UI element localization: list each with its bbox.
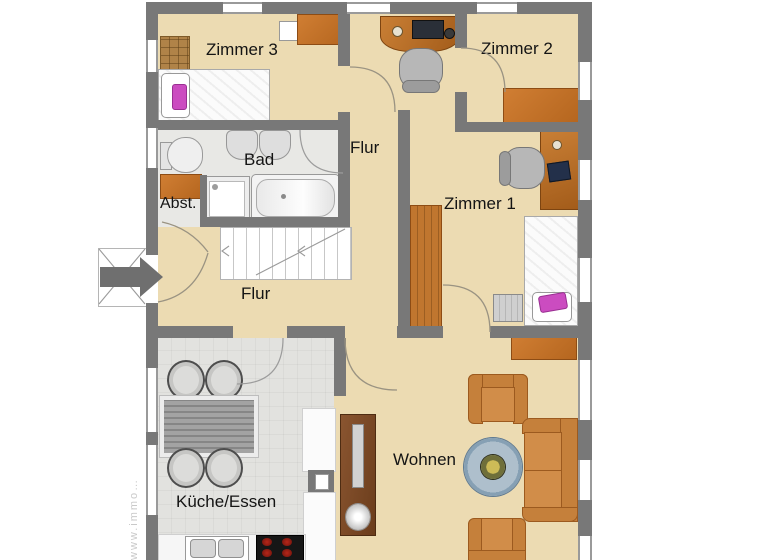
nightstand-zimmer1 <box>493 294 523 322</box>
sink-bowl-left <box>190 539 216 558</box>
dining-table <box>160 396 258 457</box>
sideboard-zimmer2 <box>503 88 579 124</box>
wall-bottom-seg2 <box>287 326 345 338</box>
wall-bad-south <box>200 217 350 227</box>
wall-kitchen-wohnen-stub <box>334 338 346 396</box>
office-chair-flur-back <box>402 80 440 93</box>
kitchen-counter-lower-right <box>303 492 336 560</box>
armchair-bottom-back <box>468 550 526 560</box>
room-label-flur-lower: Flur <box>241 284 270 304</box>
shower <box>204 176 250 222</box>
floor-plan: Zimmer 3 Zimmer 2 Zimmer 1 Bad Flur Abst… <box>0 0 768 560</box>
window-right-5 <box>578 460 592 500</box>
wall-bottom-seg3 <box>397 326 443 338</box>
window-left-3 <box>146 368 158 432</box>
office-chair-zimmer1-back <box>499 151 511 186</box>
room-label-wohnen: Wohnen <box>393 450 456 470</box>
dining-chair-3 <box>167 448 205 488</box>
entrance-door-gap <box>146 255 158 303</box>
window-left-1 <box>146 40 158 72</box>
dining-chair-1 <box>167 360 205 400</box>
window-right-3 <box>578 258 592 302</box>
armchair-bottom-seat <box>481 518 513 554</box>
coffee-table-bowl <box>481 455 505 479</box>
armchair-top-seat <box>481 387 515 422</box>
plant <box>346 504 370 530</box>
kitchen-counter-right <box>302 408 336 472</box>
stove-burner-4 <box>282 549 292 557</box>
stove-burner-3 <box>262 549 272 557</box>
room-label-zimmer1: Zimmer 1 <box>444 194 516 214</box>
bathtub-basin <box>256 179 335 217</box>
dining-chair-4 <box>205 448 243 488</box>
staircase <box>220 227 352 280</box>
computer-monitor <box>412 20 444 39</box>
desk-item-zimmer1 <box>552 140 562 150</box>
wall-zimmer3-bad <box>146 120 350 130</box>
tv <box>352 424 364 488</box>
desk-item-right <box>444 28 455 39</box>
wall-zimmer3-flur <box>338 14 350 66</box>
window-top-1 <box>223 2 262 14</box>
sofa-cushion-2 <box>524 470 562 509</box>
dresser <box>160 36 190 72</box>
window-left-4 <box>146 445 158 515</box>
wall-bad-flur <box>338 112 350 227</box>
wall-zimmer2-zimmer1 <box>455 122 592 132</box>
window-right-2 <box>578 160 592 200</box>
window-right-4 <box>578 360 592 420</box>
wall-bottom-seg1 <box>158 326 233 338</box>
nightstand <box>279 21 299 41</box>
wall-bottom-seg4 <box>490 326 592 338</box>
sofa-arm-bottom <box>522 507 578 522</box>
window-right-1 <box>578 62 592 100</box>
toilet <box>167 137 203 173</box>
dining-chair-2 <box>205 360 243 400</box>
wall-flur-zimmer1 <box>398 110 410 338</box>
stove-burner-2 <box>282 538 292 546</box>
bathtub-faucet <box>281 194 286 199</box>
window-top-3 <box>477 2 517 14</box>
room-label-abst: Abst. <box>160 195 196 213</box>
window-top-2 <box>347 2 390 14</box>
pink-cushion <box>172 84 187 110</box>
entrance-porch <box>98 248 148 307</box>
kitchen-column-inset <box>315 474 329 490</box>
wall-flur-zimmer2-upper <box>455 14 467 48</box>
shower-drain <box>212 184 218 190</box>
armchair-top-arm-right <box>513 374 528 424</box>
wardrobe-zimmer1 <box>410 205 442 329</box>
window-right-6 <box>578 536 592 560</box>
window-left-2 <box>146 128 158 168</box>
room-label-flur-upper: Flur <box>350 138 379 158</box>
room-label-zimmer2: Zimmer 2 <box>481 39 553 59</box>
wall-abst-stub <box>200 175 207 218</box>
sideboard-wohnen <box>511 335 577 360</box>
sink-bowl-right <box>218 539 244 558</box>
laptop-zimmer1 <box>547 161 571 183</box>
room-label-zimmer3: Zimmer 3 <box>206 40 278 60</box>
desk-item-left <box>392 26 403 37</box>
room-label-bad: Bad <box>244 150 274 170</box>
sofa-cushion-1 <box>524 432 562 472</box>
watermark: www.immo… <box>128 340 140 560</box>
stove-burner-1 <box>262 538 272 546</box>
room-label-kueche: Küche/Essen <box>176 492 276 512</box>
